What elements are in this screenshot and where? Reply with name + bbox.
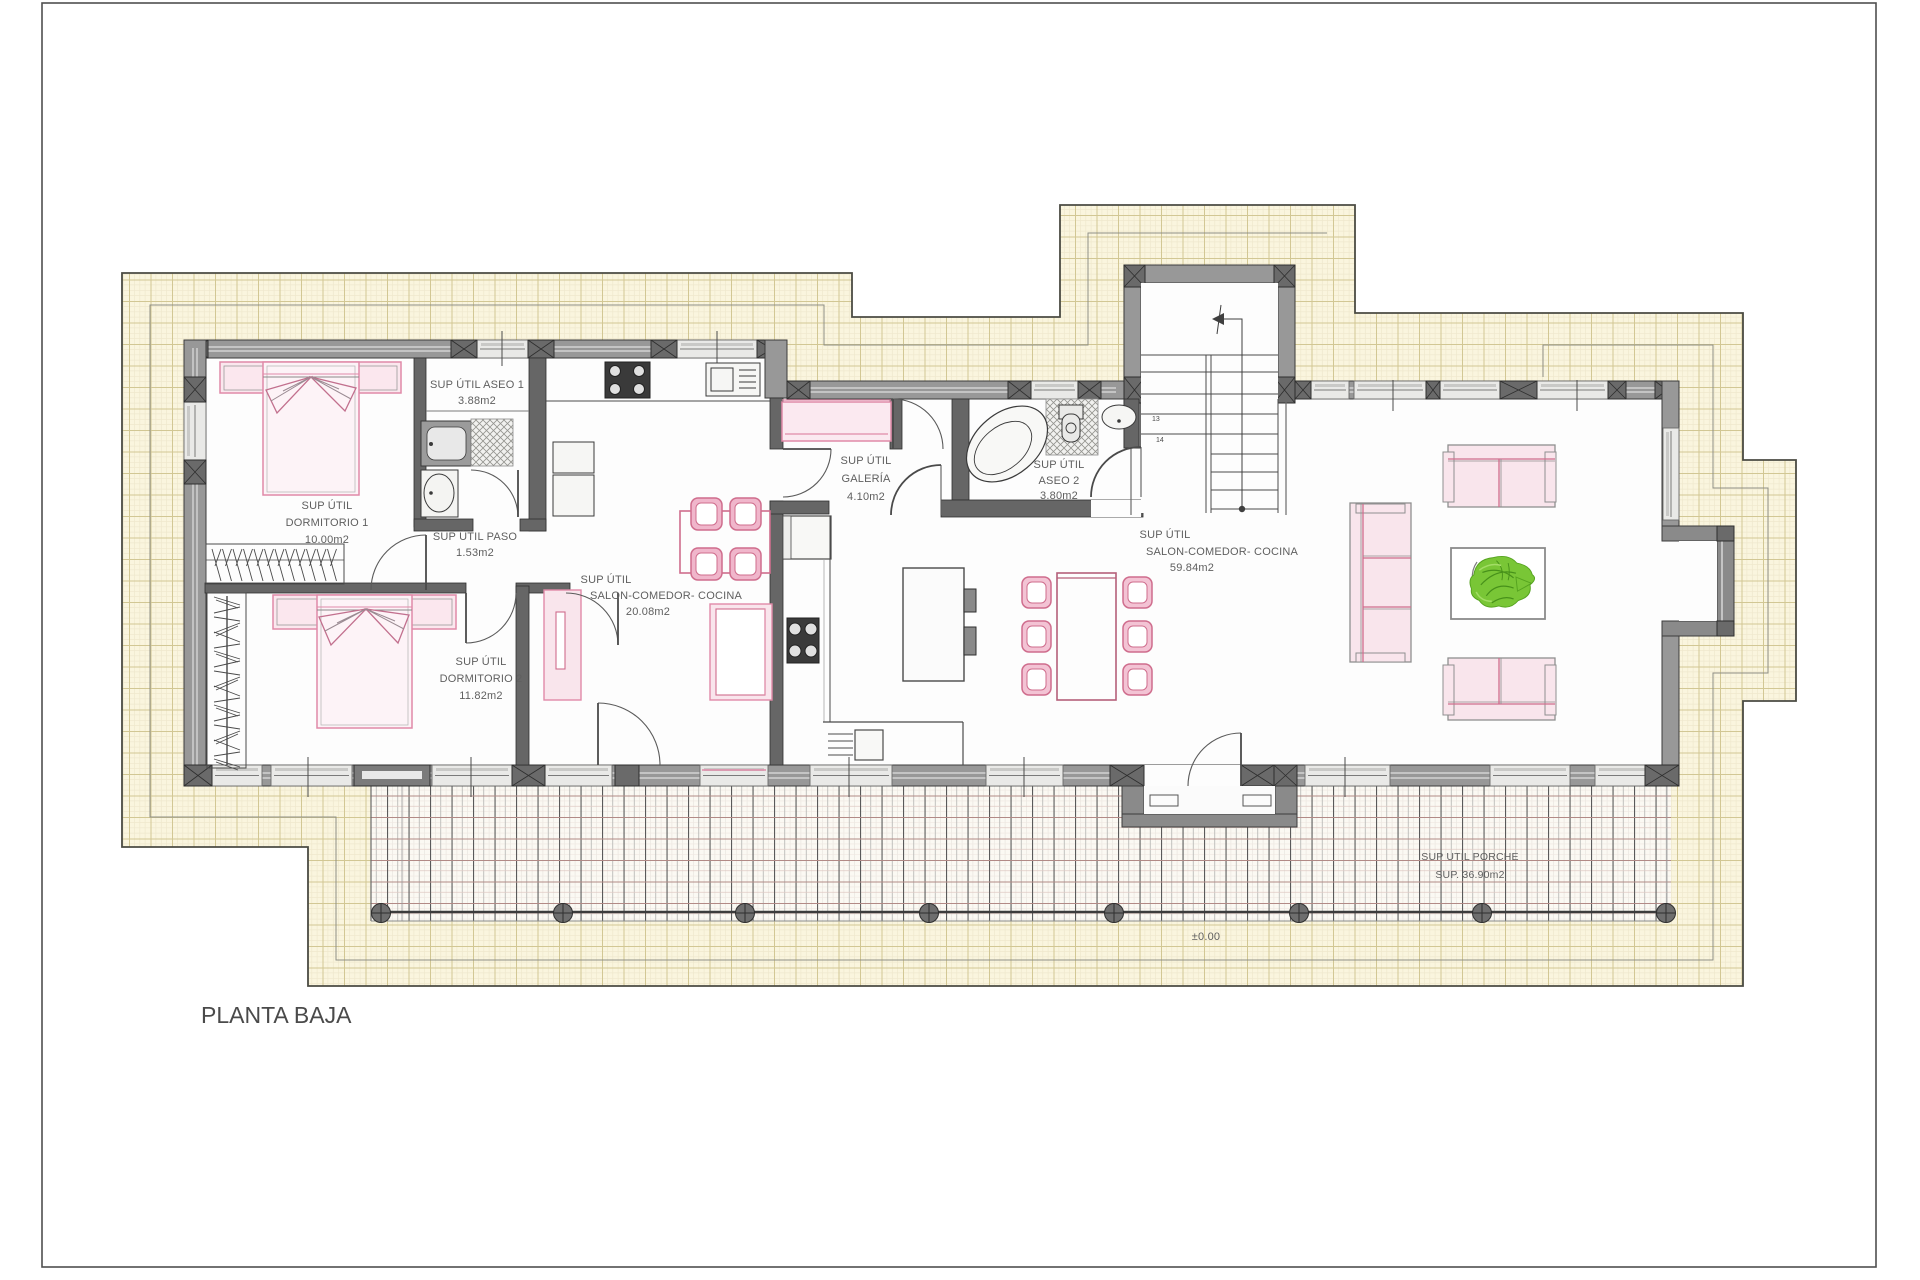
svg-text:3.88m2: 3.88m2: [458, 395, 496, 407]
svg-text:SUP ÚTIL: SUP ÚTIL: [1034, 458, 1085, 471]
svg-text:SUP ÚTIL: SUP ÚTIL: [1140, 528, 1191, 541]
svg-text:SUP ÚTIL: SUP ÚTIL: [581, 573, 632, 586]
svg-text:13: 13: [1152, 416, 1160, 423]
svg-text:SALON-COMEDOR- COCINA: SALON-COMEDOR- COCINA: [1146, 546, 1299, 558]
svg-text:PLANTA BAJA: PLANTA BAJA: [201, 1002, 352, 1028]
svg-text:ASEO 2: ASEO 2: [1039, 475, 1080, 487]
svg-text:SALON-COMEDOR- COCINA: SALON-COMEDOR- COCINA: [590, 590, 743, 602]
svg-text:SUP ÚTIL: SUP ÚTIL: [841, 454, 892, 467]
svg-text:SUP ÚTIL PASO: SUP ÚTIL PASO: [433, 530, 518, 543]
svg-text:SUP ÚTIL ASEO 1: SUP ÚTIL ASEO 1: [430, 378, 524, 391]
svg-text:SUP ÚTIL: SUP ÚTIL: [456, 655, 507, 668]
svg-text:DORMITORIO 1: DORMITORIO 1: [286, 517, 369, 529]
svg-text:DORMITORIO 2: DORMITORIO 2: [440, 673, 523, 685]
svg-text:1.53m2: 1.53m2: [456, 547, 494, 559]
svg-text:11.82m2: 11.82m2: [459, 690, 502, 702]
svg-text:10.00m2: 10.00m2: [305, 534, 349, 546]
svg-text:20.08m2: 20.08m2: [626, 606, 670, 618]
svg-text:59.84m2: 59.84m2: [1170, 562, 1214, 574]
svg-text:4.10m2: 4.10m2: [847, 491, 885, 503]
svg-text:±0.00: ±0.00: [1192, 931, 1220, 943]
svg-text:GALERÍA: GALERÍA: [841, 472, 891, 485]
svg-text:14: 14: [1156, 437, 1164, 444]
svg-text:3.80m2: 3.80m2: [1040, 490, 1078, 502]
svg-text:SUP. 36.90m2: SUP. 36.90m2: [1435, 869, 1504, 881]
svg-text:SUP ÚTIL: SUP ÚTIL: [302, 499, 353, 512]
svg-text:SUP UTIL PORCHE: SUP UTIL PORCHE: [1421, 851, 1519, 863]
